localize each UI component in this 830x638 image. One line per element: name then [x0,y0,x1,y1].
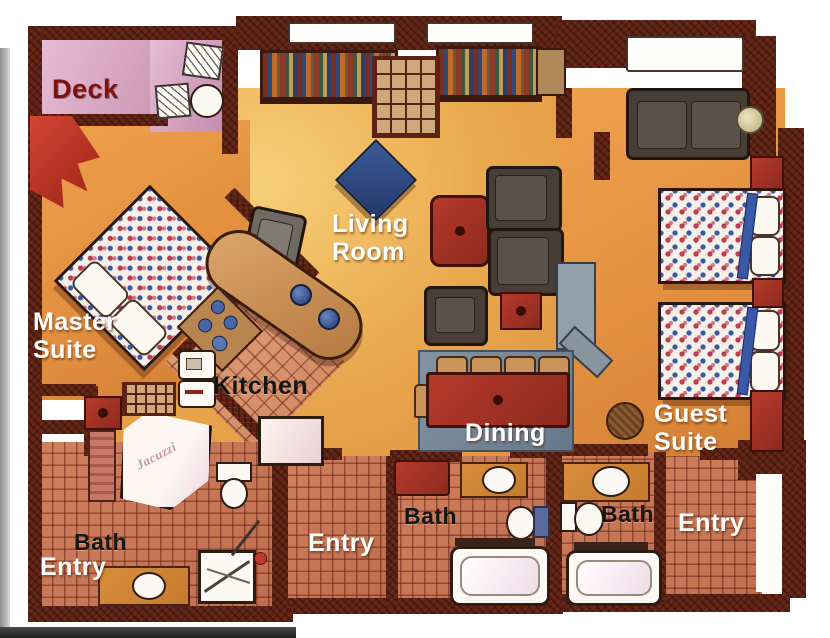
loveseat-cushion-right [691,101,741,149]
linen-cabinet [88,430,116,502]
range [178,380,216,408]
scan-bottom-bar [0,627,296,638]
burner [221,313,241,333]
deck-chair [155,83,192,120]
refrigerator [178,350,216,380]
toilet-tank [533,506,550,538]
red-side-table [500,292,542,330]
sofa-cushion [495,175,547,221]
tub-ledge [455,538,535,546]
loveseat-cushion-left [637,101,687,149]
guest-sitting-window [626,36,744,72]
armchair [424,286,488,346]
wicker-table [606,402,644,440]
tub-ledge [574,542,648,550]
bath-vanity-counter [122,382,176,416]
deck-round-table [190,84,224,118]
master-suite-label-line2: Suite [33,336,117,364]
fireplace-media-grid [372,56,440,138]
nightstand [752,278,784,308]
wall-deck-top [30,26,232,40]
burner [208,297,228,317]
main-bath-label: Bath [404,503,457,529]
dining-label: Dining [465,419,546,447]
floor-plan-canvas: Jacuzzi Deck Living Room Master Suite Ki… [0,0,830,638]
bed-pillow [750,351,780,392]
wall-bottom-left [28,606,293,622]
armchair-cushion [435,297,475,333]
door-knob [254,552,267,565]
master-bath-label: Bath [74,529,127,555]
red-washstand [84,396,122,430]
vanity-sink [592,466,630,497]
toilet-bowl [220,478,248,509]
vanity-sink [482,466,516,494]
nightstand [750,156,784,190]
kitchen-label: Kitchen [213,372,308,400]
bookshelf-right [436,46,542,102]
shower-stall [198,550,256,604]
guest-bed-2 [658,302,786,400]
master-suite-label: Master Suite [33,308,117,365]
main-entry-label: Entry [308,529,374,557]
burner [195,316,215,336]
sofa-seat-lower [488,228,564,296]
guest-suite-label-line1: Guest [654,400,727,428]
toilet-bowl [574,502,604,536]
fridge-handle [186,358,202,370]
living-room-label: Living Room [332,210,409,267]
bathtub [450,546,550,606]
range-handle [185,390,203,394]
guest-red-cabinet [750,390,784,452]
scan-edge-strip [0,48,10,638]
deck-label: Deck [52,74,119,105]
living-window-right [426,22,534,44]
toilet-bowl [506,506,536,540]
bed-pillow [750,236,780,276]
bathtub [566,550,662,606]
media-cabinet [536,48,566,96]
jacuzzi-script: Jacuzzi [134,440,179,473]
bar-stool [290,284,312,306]
wall-leftbath-entry-div [272,452,288,612]
guest-bath-label: Bath [601,501,654,527]
deck-table [182,42,224,81]
master-suite-label-line1: Master [33,308,117,336]
living-room-label-line1: Living [332,210,409,238]
tub-basin [460,556,540,596]
bar-stool [318,308,340,330]
guest-bed-1 [658,188,786,284]
wall-right-lower [782,468,806,598]
entry-mat [394,460,450,496]
red-coffee-table [430,195,490,267]
wall-master-bath-h [40,384,96,396]
wall-guest-partial [594,132,610,180]
dishwasher [258,416,324,466]
master-entry-label: Entry [40,553,106,581]
living-room-label-line2: Room [332,238,409,266]
guest-entry-door-gap [756,474,782,592]
guest-suite-label: Guest Suite [654,400,727,457]
guest-entry-label: Entry [678,509,744,537]
tub-basin [576,560,652,596]
sofa-seat-upper [486,166,562,232]
guest-suite-label-line2: Suite [654,428,727,456]
sofa-cushion [497,237,549,285]
guest-loveseat [626,88,750,160]
vanity-sink [132,572,166,600]
floor-lamp [736,106,764,134]
living-window-left [288,22,396,44]
